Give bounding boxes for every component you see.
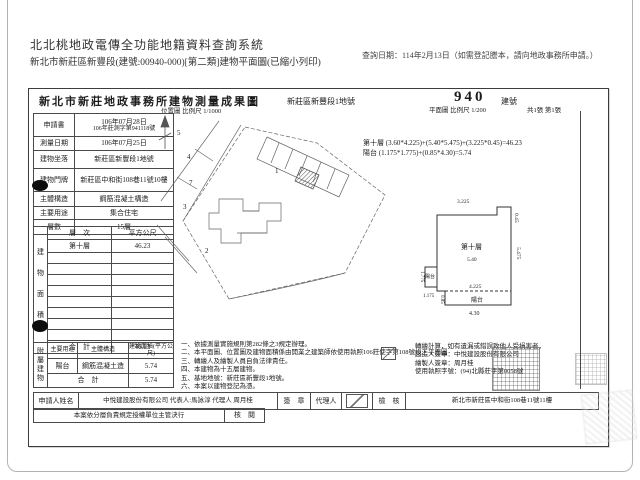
annex-use: 陽台 (48, 359, 78, 374)
dim-top-width: 3.225 (457, 199, 470, 205)
office-address: 新北市新莊區中和街108巷11號11樓 (406, 393, 599, 410)
parcel-number: 4 (187, 153, 191, 161)
plan-outline (437, 207, 511, 305)
annex-side-label: 附屬建物 (36, 347, 44, 383)
dim-balcony-width: 1.175 (423, 294, 435, 299)
approval-text: 本案依分層負責規定授權單位主管決行 (34, 409, 225, 423)
annex-structure: 鋼筋混凝土造 (78, 359, 129, 374)
query-date: 查詢日期：114年2月13日（如需登記謄本，請向地政事務所申請。） (362, 50, 628, 61)
plan-balcony-label: 陽台 (425, 273, 435, 280)
annex-total-label: 合 計 (48, 374, 129, 388)
sheet-info: 共1張 第1張 (527, 104, 561, 114)
annex-col-use: 主要用途 (48, 343, 78, 359)
page: 北北桃地政電傳全功能地籍資料查詢系統 新北市新莊區新豐段(建號:00940-00… (0, 0, 640, 480)
note-line: 四、本建物為十五層建物。 (181, 366, 421, 374)
parcel-number: 2 (205, 247, 209, 255)
plan-room-label: 第十層 (461, 242, 482, 251)
info-label: 建物坐落 (34, 151, 75, 169)
company-seal-stamp (492, 347, 540, 391)
area-empty-cell (48, 286, 112, 297)
dim-right-height: 5.475 (515, 247, 521, 260)
black-oval-mark (32, 320, 48, 332)
annex-table: 附屬建物 主要用途 主體構造 建物面積(平方公尺) 陽台 鋼筋混凝土造 5.74… (33, 342, 174, 388)
applicant-label: 申請人姓名 (34, 393, 79, 410)
approval-check-label: 核 閱 (225, 409, 265, 423)
area-calc-line2: 陽台 (1.175*1.775)+(0.85*4.30)=5.74 (363, 149, 471, 158)
parcel-number: 7 (189, 179, 193, 187)
info-value-line1: 106年07月28日 (101, 118, 147, 126)
dim-bottom-width: 4.30 (469, 311, 480, 317)
dim-balcony-height: 1.775 (419, 271, 424, 283)
column-divider (580, 111, 581, 389)
area-col-floor: 層 次 (48, 227, 112, 240)
area-calc-line1: 第十層 (3.60*4.225)+(5.40*5.475)+(3.225*0.4… (363, 139, 522, 148)
note-line: 五、基地地號：新莊區新豐段1地號。 (181, 375, 421, 383)
area-empty-cell (48, 275, 112, 286)
annex-area: 5.74 (129, 359, 174, 374)
secondary-seal-stamp (575, 353, 607, 385)
plan-scale-label: 平面圖 比例尺 1/200 (429, 104, 486, 114)
info-label: 主要用途 (34, 207, 75, 220)
agent-stamp-cell (342, 393, 373, 410)
annex-side-label-cell: 附屬建物 (34, 343, 48, 388)
approval-table: 本案依分層負責規定授權單位主管決行 核 閱 (33, 408, 265, 423)
dim-notch-height: 0.45 (513, 213, 519, 223)
info-label: 主體構造 (34, 192, 75, 207)
info-label: 測量日期 (34, 137, 75, 151)
plan-bottom-balcony-label: 陽台 (471, 296, 483, 304)
sign-label: 簽 章 (278, 393, 311, 410)
area-empty-cell (48, 253, 112, 264)
black-oval-mark (32, 180, 48, 191)
area-empty-cell (48, 330, 112, 341)
parcel-number: 3 (183, 203, 187, 211)
area-empty-cell (48, 297, 112, 308)
parcel-number: 1 (275, 167, 279, 175)
area-empty-cell (48, 264, 112, 275)
check-label: 檢 核 (373, 393, 406, 410)
applicant-value: 中悅建設股份有限公司 代表人:馬詠淳 代理人 周月桂 (79, 393, 278, 410)
annex-col-structure: 主體構造 (78, 343, 129, 359)
north-arrow-icon (159, 116, 171, 149)
area-empty-cell (48, 308, 112, 319)
map-parcel-lines (157, 121, 385, 299)
building-number-label: 建號 (501, 96, 517, 107)
floor-plan: 3.225 0.45 5.475 第十層 5.40 陽台 1.175 1.775… (397, 185, 557, 337)
area-empty-cell (48, 319, 112, 330)
agent-label: 代理人 (311, 393, 342, 410)
signature-box-stamp (381, 347, 396, 360)
info-label: 申請書 (34, 114, 75, 137)
parcel-number: 5 (177, 129, 181, 137)
system-title: 北北桃地政電傳全功能地籍資料查詢系統 (30, 36, 264, 53)
agent-seal-stamp (346, 394, 368, 408)
annex-col-area: 建物面積(平方公尺) (129, 343, 174, 359)
dim-room-width: 5.40 (467, 257, 477, 263)
area-side-label-cell: 建物面積 (34, 227, 48, 354)
dim-bottom-balcony-height: 0.85 (439, 295, 444, 304)
area-floor: 第十層 (48, 240, 112, 253)
annex-total-value: 5.74 (129, 374, 174, 388)
dim-mid-width: 4.225 (469, 284, 482, 290)
survey-document: 新北市新莊地政事務所建物測量成果圖 新莊區新豐段1地號 940 建號 位置圖 比… (28, 88, 609, 447)
note-line: 六、本案以建物登記為憑。 (181, 383, 421, 391)
document-subtitle: 新北市新莊區新豐段(建號:00940-000)[第二類]建物平面圖(已縮小列印) (30, 54, 321, 68)
faint-office-stamp (581, 389, 638, 444)
